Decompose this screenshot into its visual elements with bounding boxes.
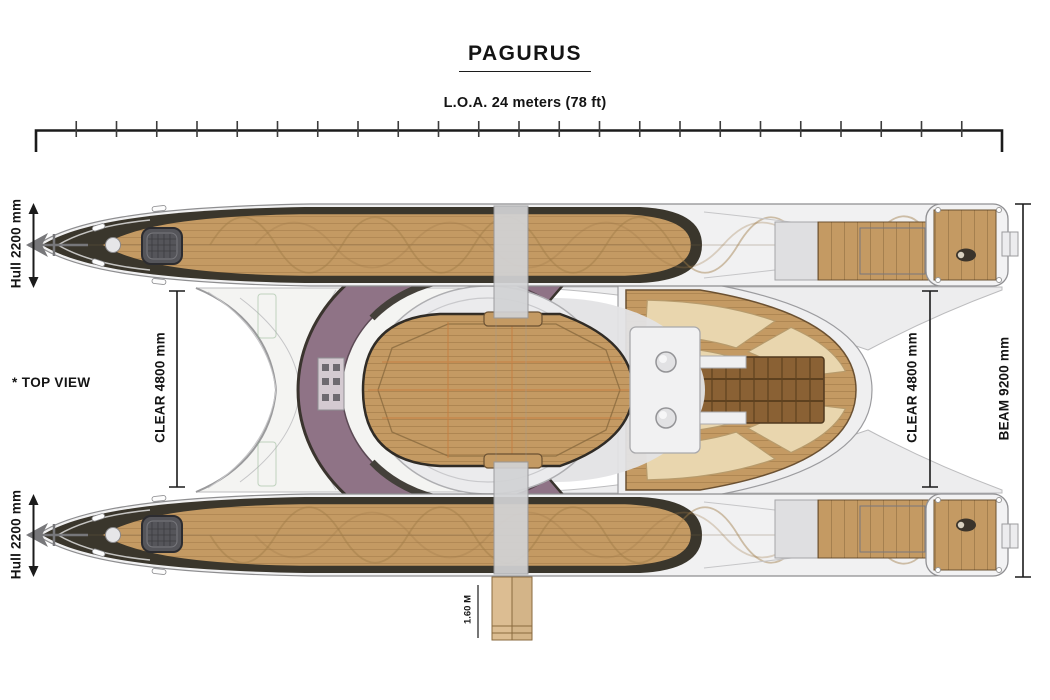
top-view-plan: PAGURUS L.O.A. 24 meters (78 ft) Hull 22… — [0, 0, 1050, 700]
beam-label: BEAM 9200 mm — [997, 319, 1012, 459]
hatch-icon — [142, 228, 182, 264]
deck-knob — [656, 408, 676, 428]
hull-bottom-label: Hull 2200 mm — [9, 465, 24, 605]
helm-figure-icon — [956, 249, 976, 262]
clear-dim-left — [169, 291, 185, 487]
mast-beam — [494, 462, 528, 574]
top-view-note: * TOP VIEW — [12, 375, 91, 390]
windlass-icon — [106, 238, 121, 253]
clear-right-label: CLEAR 4800 mm — [905, 318, 920, 458]
drawing-title: PAGURUS — [459, 42, 591, 72]
loa-ruler-ticks — [76, 121, 962, 137]
drawing-title-row: PAGURUS — [0, 42, 1050, 72]
stern-platform — [926, 204, 1018, 286]
clear-left-label: CLEAR 4800 mm — [153, 318, 168, 458]
gangway-label: 1.60 M — [463, 575, 474, 645]
console-panel — [318, 358, 344, 410]
hull-top-label: Hull 2200 mm — [9, 174, 24, 314]
gangway-plank — [492, 577, 532, 640]
beam-dim — [1015, 204, 1031, 577]
aft-hatch — [775, 222, 818, 280]
deck-knob — [656, 352, 676, 372]
loa-label: L.O.A. 24 meters (78 ft) — [0, 95, 1050, 111]
mast-beam — [494, 206, 528, 318]
flybridge-oval — [363, 312, 633, 468]
